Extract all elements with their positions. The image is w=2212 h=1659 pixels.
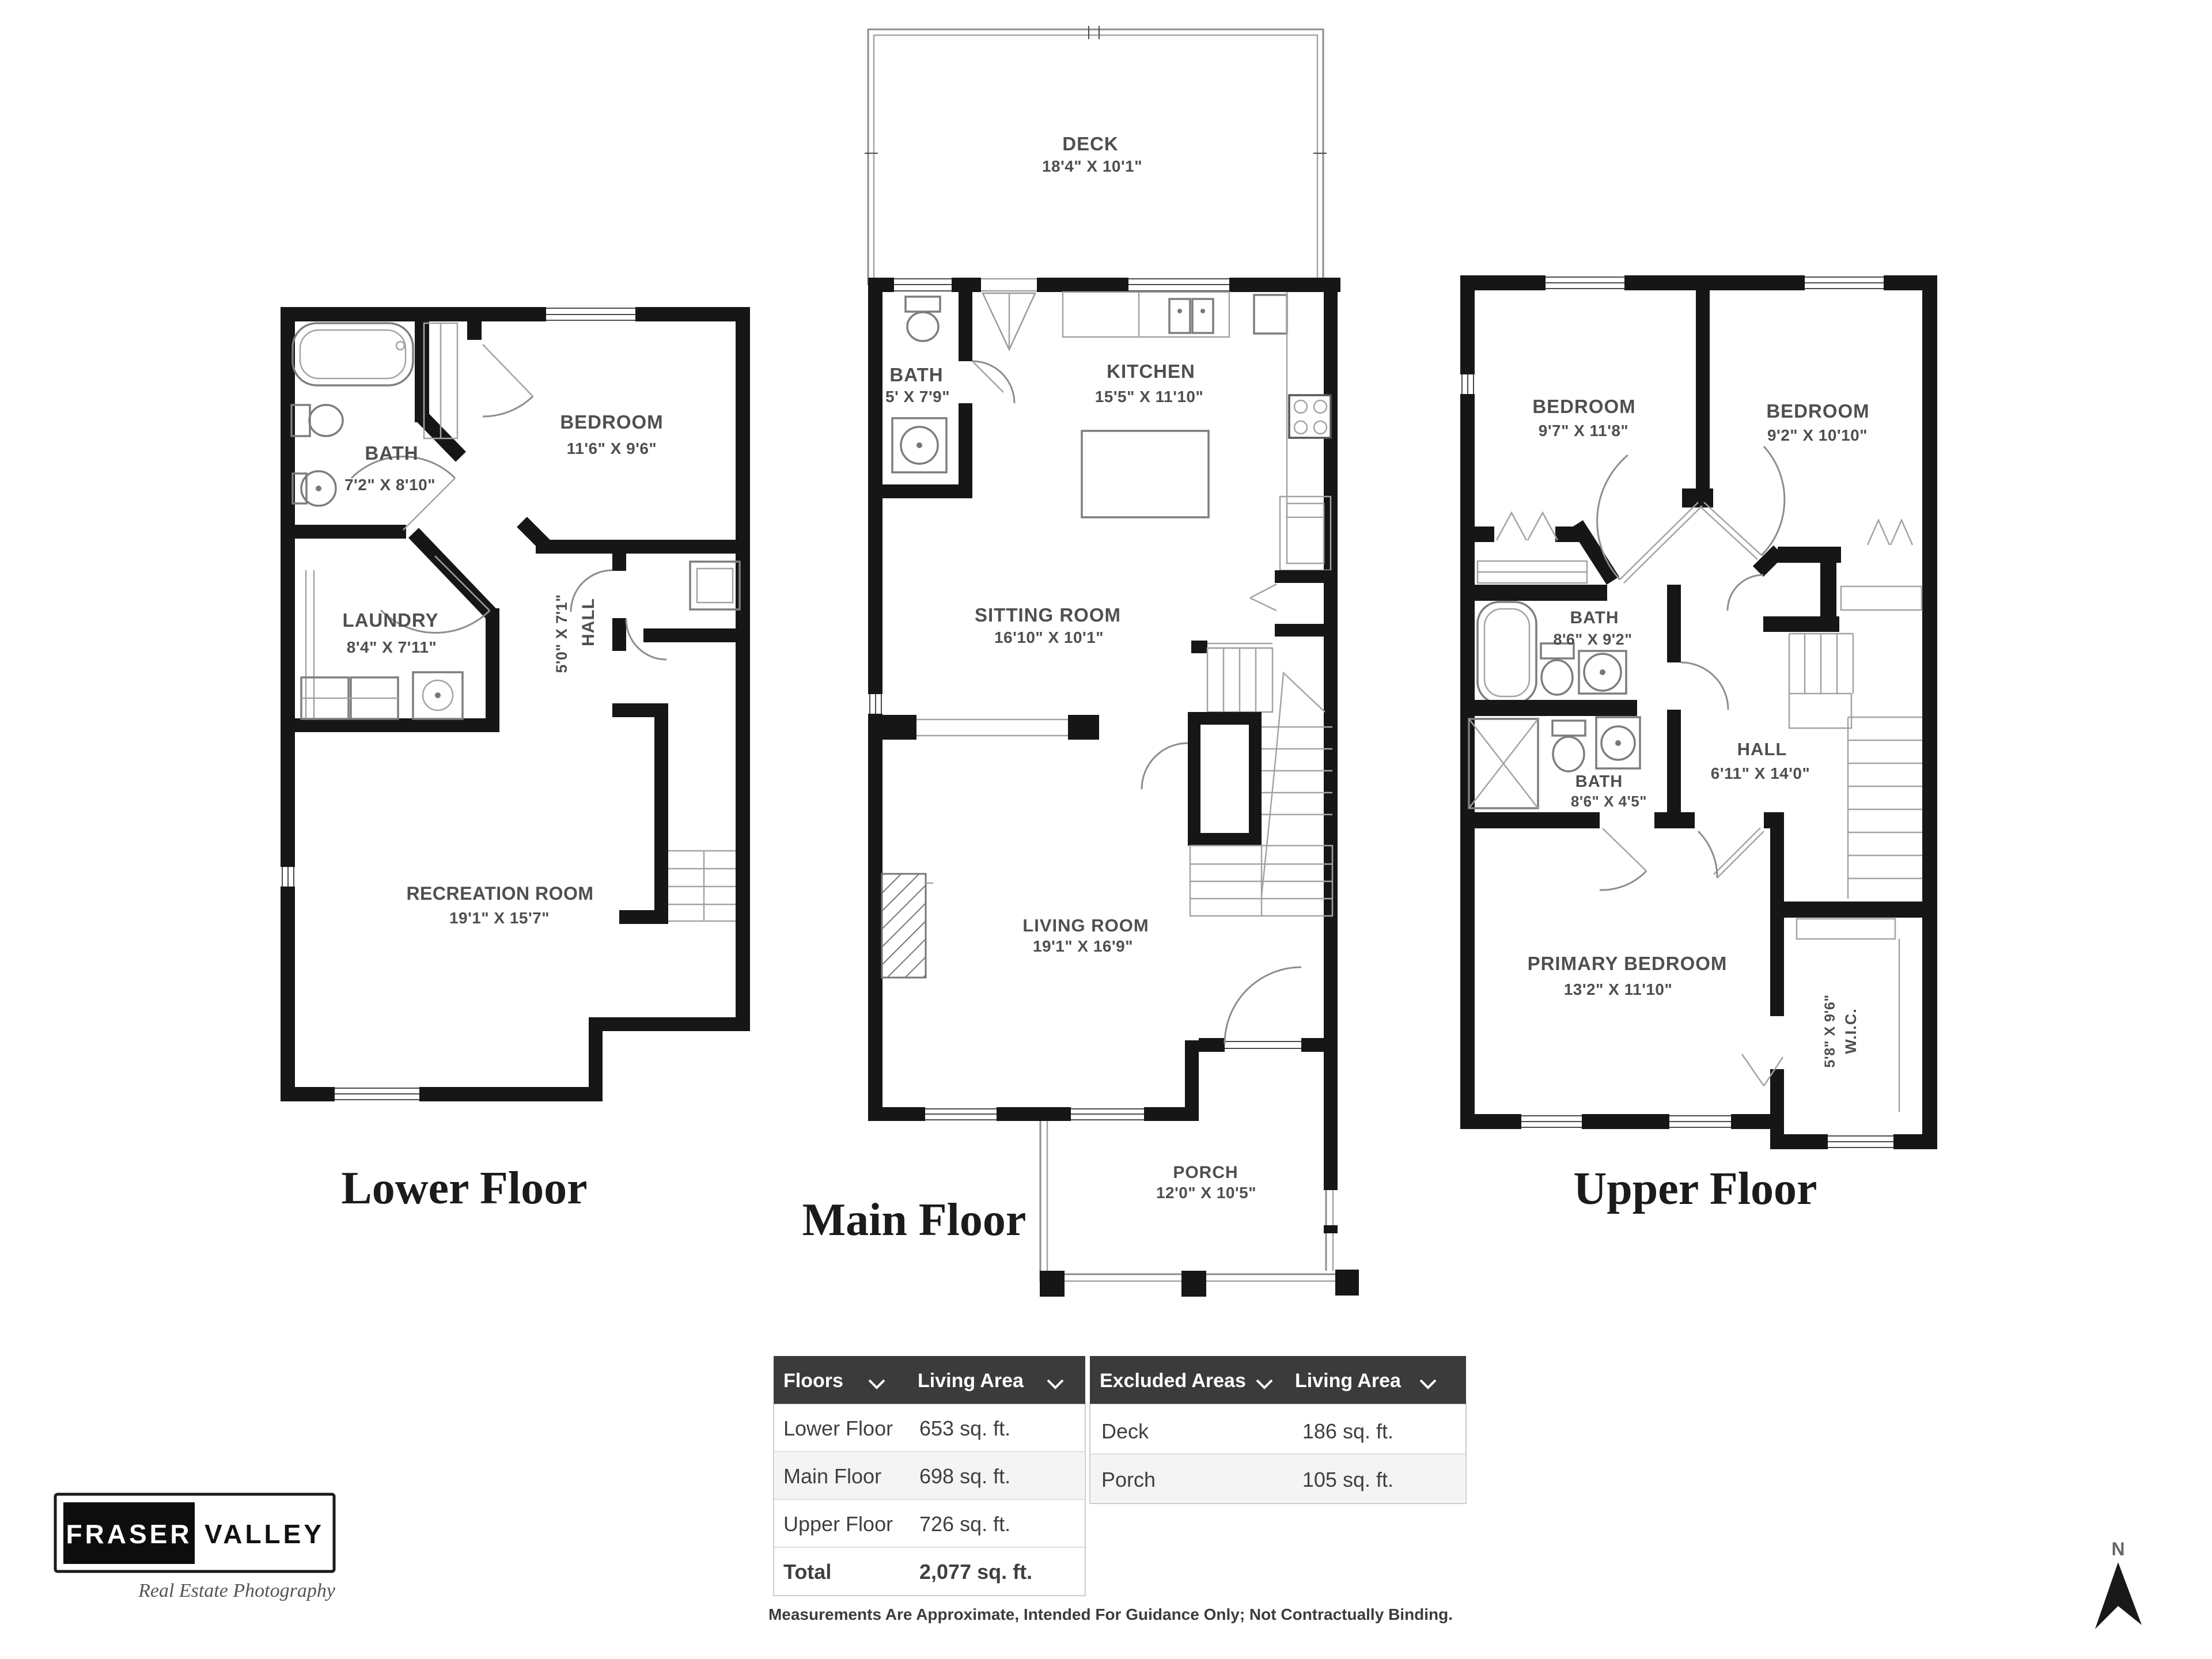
svg-text:5'0" X 7'1": 5'0" X 7'1" [553, 594, 570, 673]
svg-text:8'4" X 7'11": 8'4" X 7'11" [347, 638, 437, 656]
svg-text:698 sq. ft.: 698 sq. ft. [919, 1464, 1010, 1488]
svg-text:13'2" X 11'10": 13'2" X 11'10" [1564, 980, 1673, 998]
svg-text:SITTING ROOM: SITTING ROOM [975, 604, 1121, 626]
svg-text:BEDROOM: BEDROOM [560, 411, 663, 433]
svg-text:15'5" X 11'10": 15'5" X 11'10" [1095, 388, 1204, 406]
svg-text:BATH: BATH [889, 364, 943, 385]
svg-text:Real Estate Photography: Real Estate Photography [138, 1580, 336, 1601]
svg-text:PORCH: PORCH [1173, 1163, 1238, 1182]
svg-text:Upper Floor: Upper Floor [783, 1512, 893, 1536]
svg-text:Main Floor: Main Floor [783, 1464, 881, 1488]
svg-text:2,077 sq. ft.: 2,077 sq. ft. [919, 1560, 1032, 1584]
svg-text:Main Floor: Main Floor [802, 1195, 1027, 1245]
svg-text:BEDROOM: BEDROOM [1766, 400, 1869, 422]
svg-text:Measurements Are Approximate,: Measurements Are Approximate, Intended F… [768, 1605, 1453, 1623]
svg-text:Floors: Floors [783, 1370, 843, 1392]
svg-text:BEDROOM: BEDROOM [1532, 396, 1635, 417]
svg-text:19'1" X 15'7": 19'1" X 15'7" [449, 909, 550, 927]
svg-text:LAUNDRY: LAUNDRY [342, 609, 438, 631]
svg-text:9'2" X 10'10": 9'2" X 10'10" [1767, 426, 1868, 444]
svg-text:RECREATION ROOM: RECREATION ROOM [406, 883, 593, 904]
svg-text:Total: Total [783, 1560, 831, 1584]
svg-text:BATH: BATH [365, 442, 418, 464]
svg-text:BATH: BATH [1575, 772, 1623, 791]
svg-text:Upper Floor: Upper Floor [1574, 1164, 1817, 1214]
svg-text:VALLEY: VALLEY [204, 1519, 324, 1549]
svg-text:LIVING ROOM: LIVING ROOM [1022, 915, 1149, 935]
svg-text:11'6" X 9'6": 11'6" X 9'6" [567, 440, 657, 457]
svg-text:Excluded Areas: Excluded Areas [1100, 1370, 1246, 1392]
svg-text:Living Area: Living Area [918, 1370, 1024, 1392]
svg-text:Deck: Deck [1101, 1419, 1149, 1443]
svg-text:HALL: HALL [1737, 739, 1787, 759]
svg-text:18'4" X 10'1": 18'4" X 10'1" [1042, 157, 1142, 175]
svg-text:Porch: Porch [1101, 1468, 1156, 1491]
svg-text:Living Area: Living Area [1295, 1370, 1402, 1392]
svg-text:12'0" X 10'5": 12'0" X 10'5" [1156, 1184, 1256, 1202]
svg-text:9'7" X 11'8": 9'7" X 11'8" [1539, 422, 1628, 440]
svg-text:Lower Floor: Lower Floor [783, 1416, 893, 1440]
svg-text:5'8" X 9'6": 5'8" X 9'6" [1822, 994, 1838, 1067]
svg-text:5' X 7'9": 5' X 7'9" [885, 388, 950, 406]
svg-text:653 sq. ft.: 653 sq. ft. [919, 1416, 1010, 1440]
svg-text:W.I.C.: W.I.C. [1842, 1008, 1859, 1054]
svg-text:726 sq. ft.: 726 sq. ft. [919, 1512, 1010, 1536]
svg-text:6'11" X 14'0": 6'11" X 14'0" [1711, 764, 1810, 782]
svg-text:Lower Floor: Lower Floor [341, 1163, 587, 1214]
svg-text:KITCHEN: KITCHEN [1107, 361, 1195, 382]
svg-text:186 sq. ft.: 186 sq. ft. [1302, 1419, 1393, 1443]
svg-text:HALL: HALL [579, 598, 598, 646]
svg-text:N: N [2111, 1539, 2124, 1559]
svg-text:8'6" X 9'2": 8'6" X 9'2" [1553, 631, 1632, 648]
svg-text:105 sq. ft.: 105 sq. ft. [1302, 1468, 1393, 1491]
svg-text:FRASER: FRASER [66, 1519, 192, 1549]
svg-text:16'10" X 10'1": 16'10" X 10'1" [994, 628, 1104, 646]
svg-text:DECK: DECK [1062, 133, 1119, 154]
svg-text:7'2" X 8'10": 7'2" X 8'10" [344, 476, 435, 494]
svg-text:19'1" X 16'9": 19'1" X 16'9" [1033, 937, 1133, 955]
svg-text:8'6" X 4'5": 8'6" X 4'5" [1571, 793, 1647, 810]
svg-text:PRIMARY BEDROOM: PRIMARY BEDROOM [1528, 953, 1728, 974]
svg-text:BATH: BATH [1570, 608, 1619, 627]
